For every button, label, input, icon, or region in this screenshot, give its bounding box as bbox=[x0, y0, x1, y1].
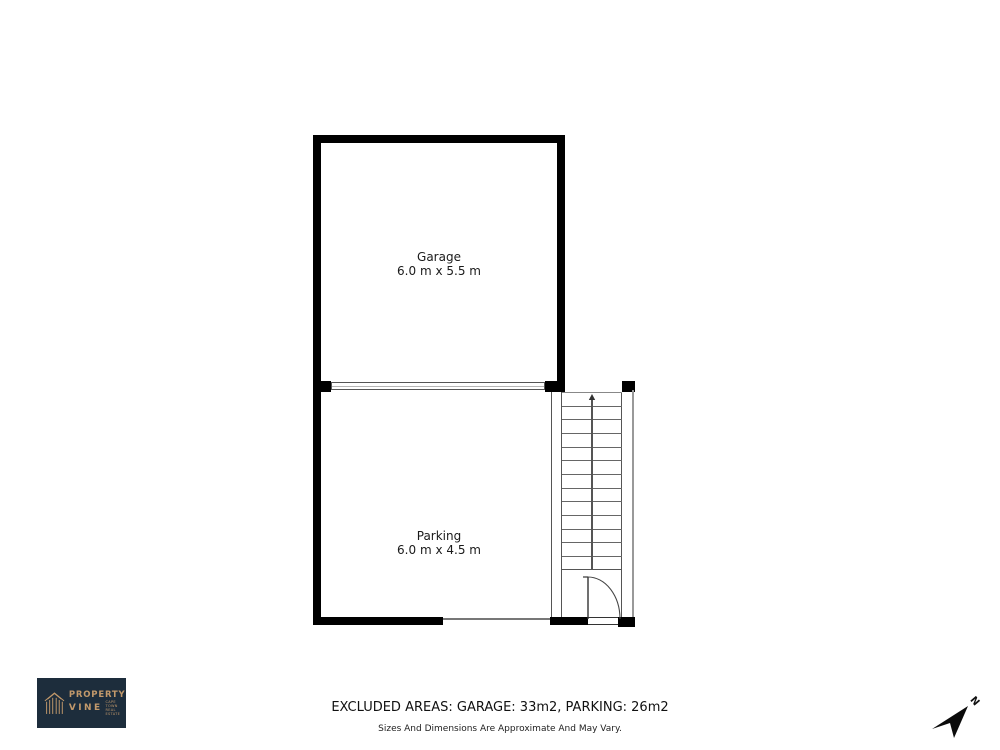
left-wall bbox=[313, 135, 321, 625]
bottom-wall-left bbox=[313, 617, 443, 625]
garage-right-wall bbox=[557, 135, 565, 392]
parking-dimensions: 6.0 m x 4.5 m bbox=[321, 544, 557, 558]
parking-name: Parking bbox=[321, 530, 557, 544]
garage-door-stub-right bbox=[545, 381, 565, 392]
garage-door-stub-left bbox=[313, 381, 331, 392]
garage-dimensions: 6.0 m x 5.5 m bbox=[321, 265, 557, 279]
garage-door bbox=[331, 382, 545, 390]
garage-label: Garage 6.0 m x 5.5 m bbox=[321, 251, 557, 278]
staircase bbox=[562, 392, 622, 570]
garage-name: Garage bbox=[321, 251, 557, 265]
stair-up-arrow-icon bbox=[587, 394, 597, 402]
stair-centerline bbox=[591, 398, 592, 569]
disclaimer-text: Sizes And Dimensions Are Approximate And… bbox=[0, 724, 1000, 734]
parking-label: Parking 6.0 m x 4.5 m bbox=[321, 530, 557, 557]
entry-door bbox=[560, 560, 640, 630]
garage-top-wall bbox=[313, 135, 565, 143]
bottom-opening-line bbox=[443, 618, 550, 620]
garage-door-track bbox=[332, 386, 544, 388]
floorplan-canvas: Garage 6.0 m x 5.5 m Parking 6.0 m x 4.5… bbox=[0, 0, 1000, 750]
parking-stair-wall-outer bbox=[551, 392, 552, 617]
excluded-areas-text: EXCLUDED AREAS: GARAGE: 33m2, PARKING: 2… bbox=[0, 700, 1000, 715]
door-swing-arc bbox=[588, 577, 620, 619]
logo-line1: PROPERTY bbox=[69, 690, 126, 700]
